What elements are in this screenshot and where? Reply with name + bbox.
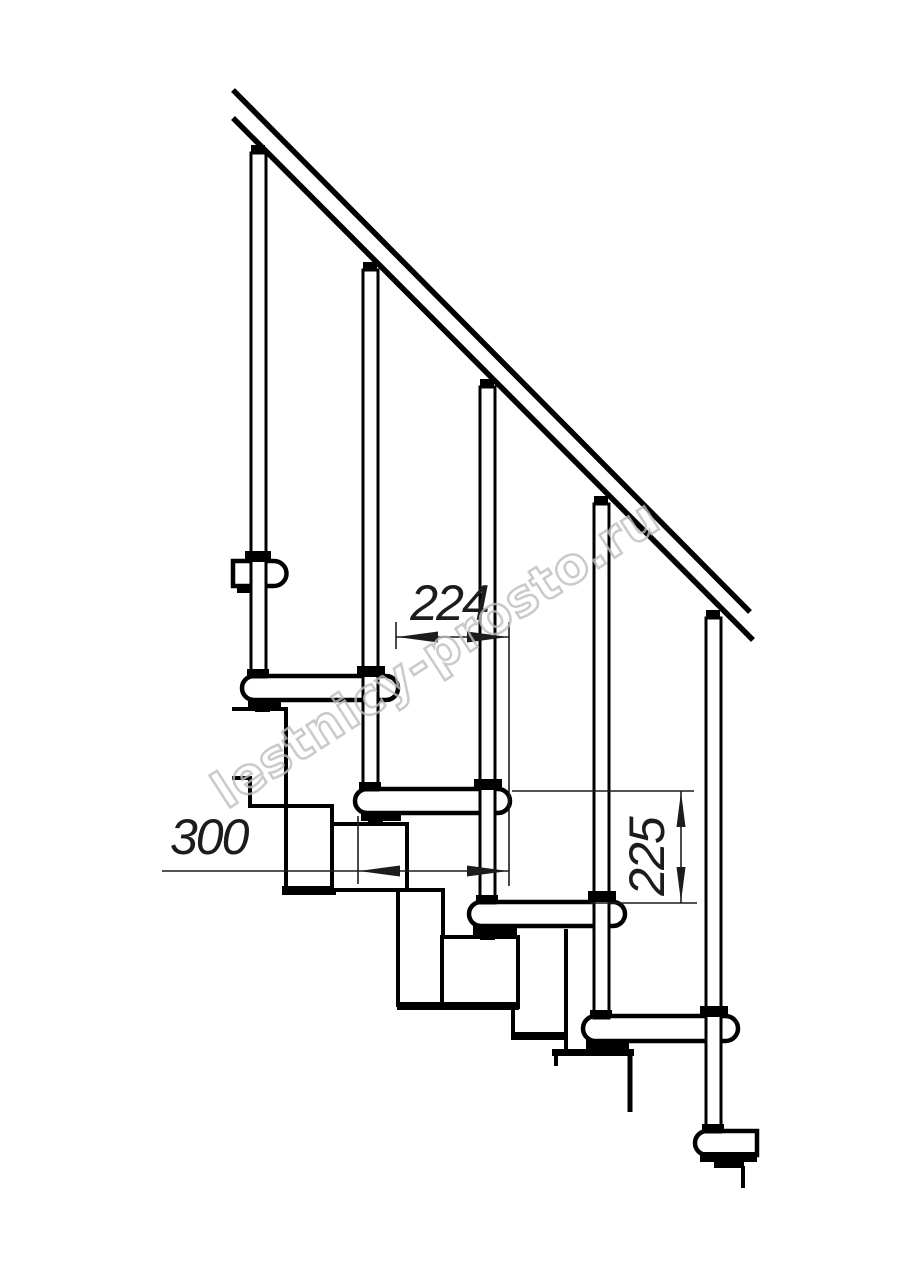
module-box-3 — [332, 824, 407, 890]
baluster-1-flange — [247, 669, 269, 677]
baluster-4-flange — [590, 1010, 612, 1018]
connector-tab-2 — [368, 821, 383, 826]
baluster-1-collar — [245, 551, 271, 562]
baluster-1 — [245, 145, 271, 677]
baluster-5 — [700, 610, 728, 1132]
connector-strip-3 — [473, 925, 517, 935]
staircase-drawing-canvas: 224 300 225 lestnicy-prosto.ru — [0, 0, 914, 1280]
baluster-3-flange — [476, 895, 498, 903]
connector-tab-5 — [714, 1162, 744, 1168]
dim-225-label: 225 — [619, 816, 675, 897]
dim-225-arrow-up — [677, 792, 686, 827]
module-box-2-foot — [282, 886, 336, 895]
staircase-drawing: 224 300 225 lestnicy-prosto.ru — [0, 0, 914, 1280]
baluster-5-flange — [702, 1124, 724, 1132]
connector-strip-2 — [361, 812, 401, 821]
module-8-top — [552, 1049, 634, 1056]
connector-strip-1 — [248, 698, 281, 707]
baluster-1-shaft — [251, 153, 266, 677]
baluster-4-collar — [588, 891, 616, 902]
connector-strip-4 — [586, 1039, 629, 1049]
module-6-foot — [511, 1032, 568, 1040]
connector-tab-1 — [255, 707, 270, 712]
connector-tab-3 — [480, 935, 495, 940]
module-box-2 — [286, 806, 332, 891]
baluster-5-shaft — [706, 618, 721, 1132]
tread-5-fragment — [695, 1131, 757, 1155]
baluster-3-collar — [474, 779, 502, 790]
baluster-5-collar — [700, 1006, 728, 1017]
dim-300-label: 300 — [170, 809, 250, 865]
module-box-5 — [442, 937, 518, 1007]
connector-strip-5 — [700, 1152, 757, 1162]
baluster-2-flange — [359, 782, 381, 790]
module-box-5-foot — [397, 1002, 519, 1010]
module-box-4 — [398, 890, 443, 1005]
dim-225-arrow-down — [677, 867, 686, 902]
